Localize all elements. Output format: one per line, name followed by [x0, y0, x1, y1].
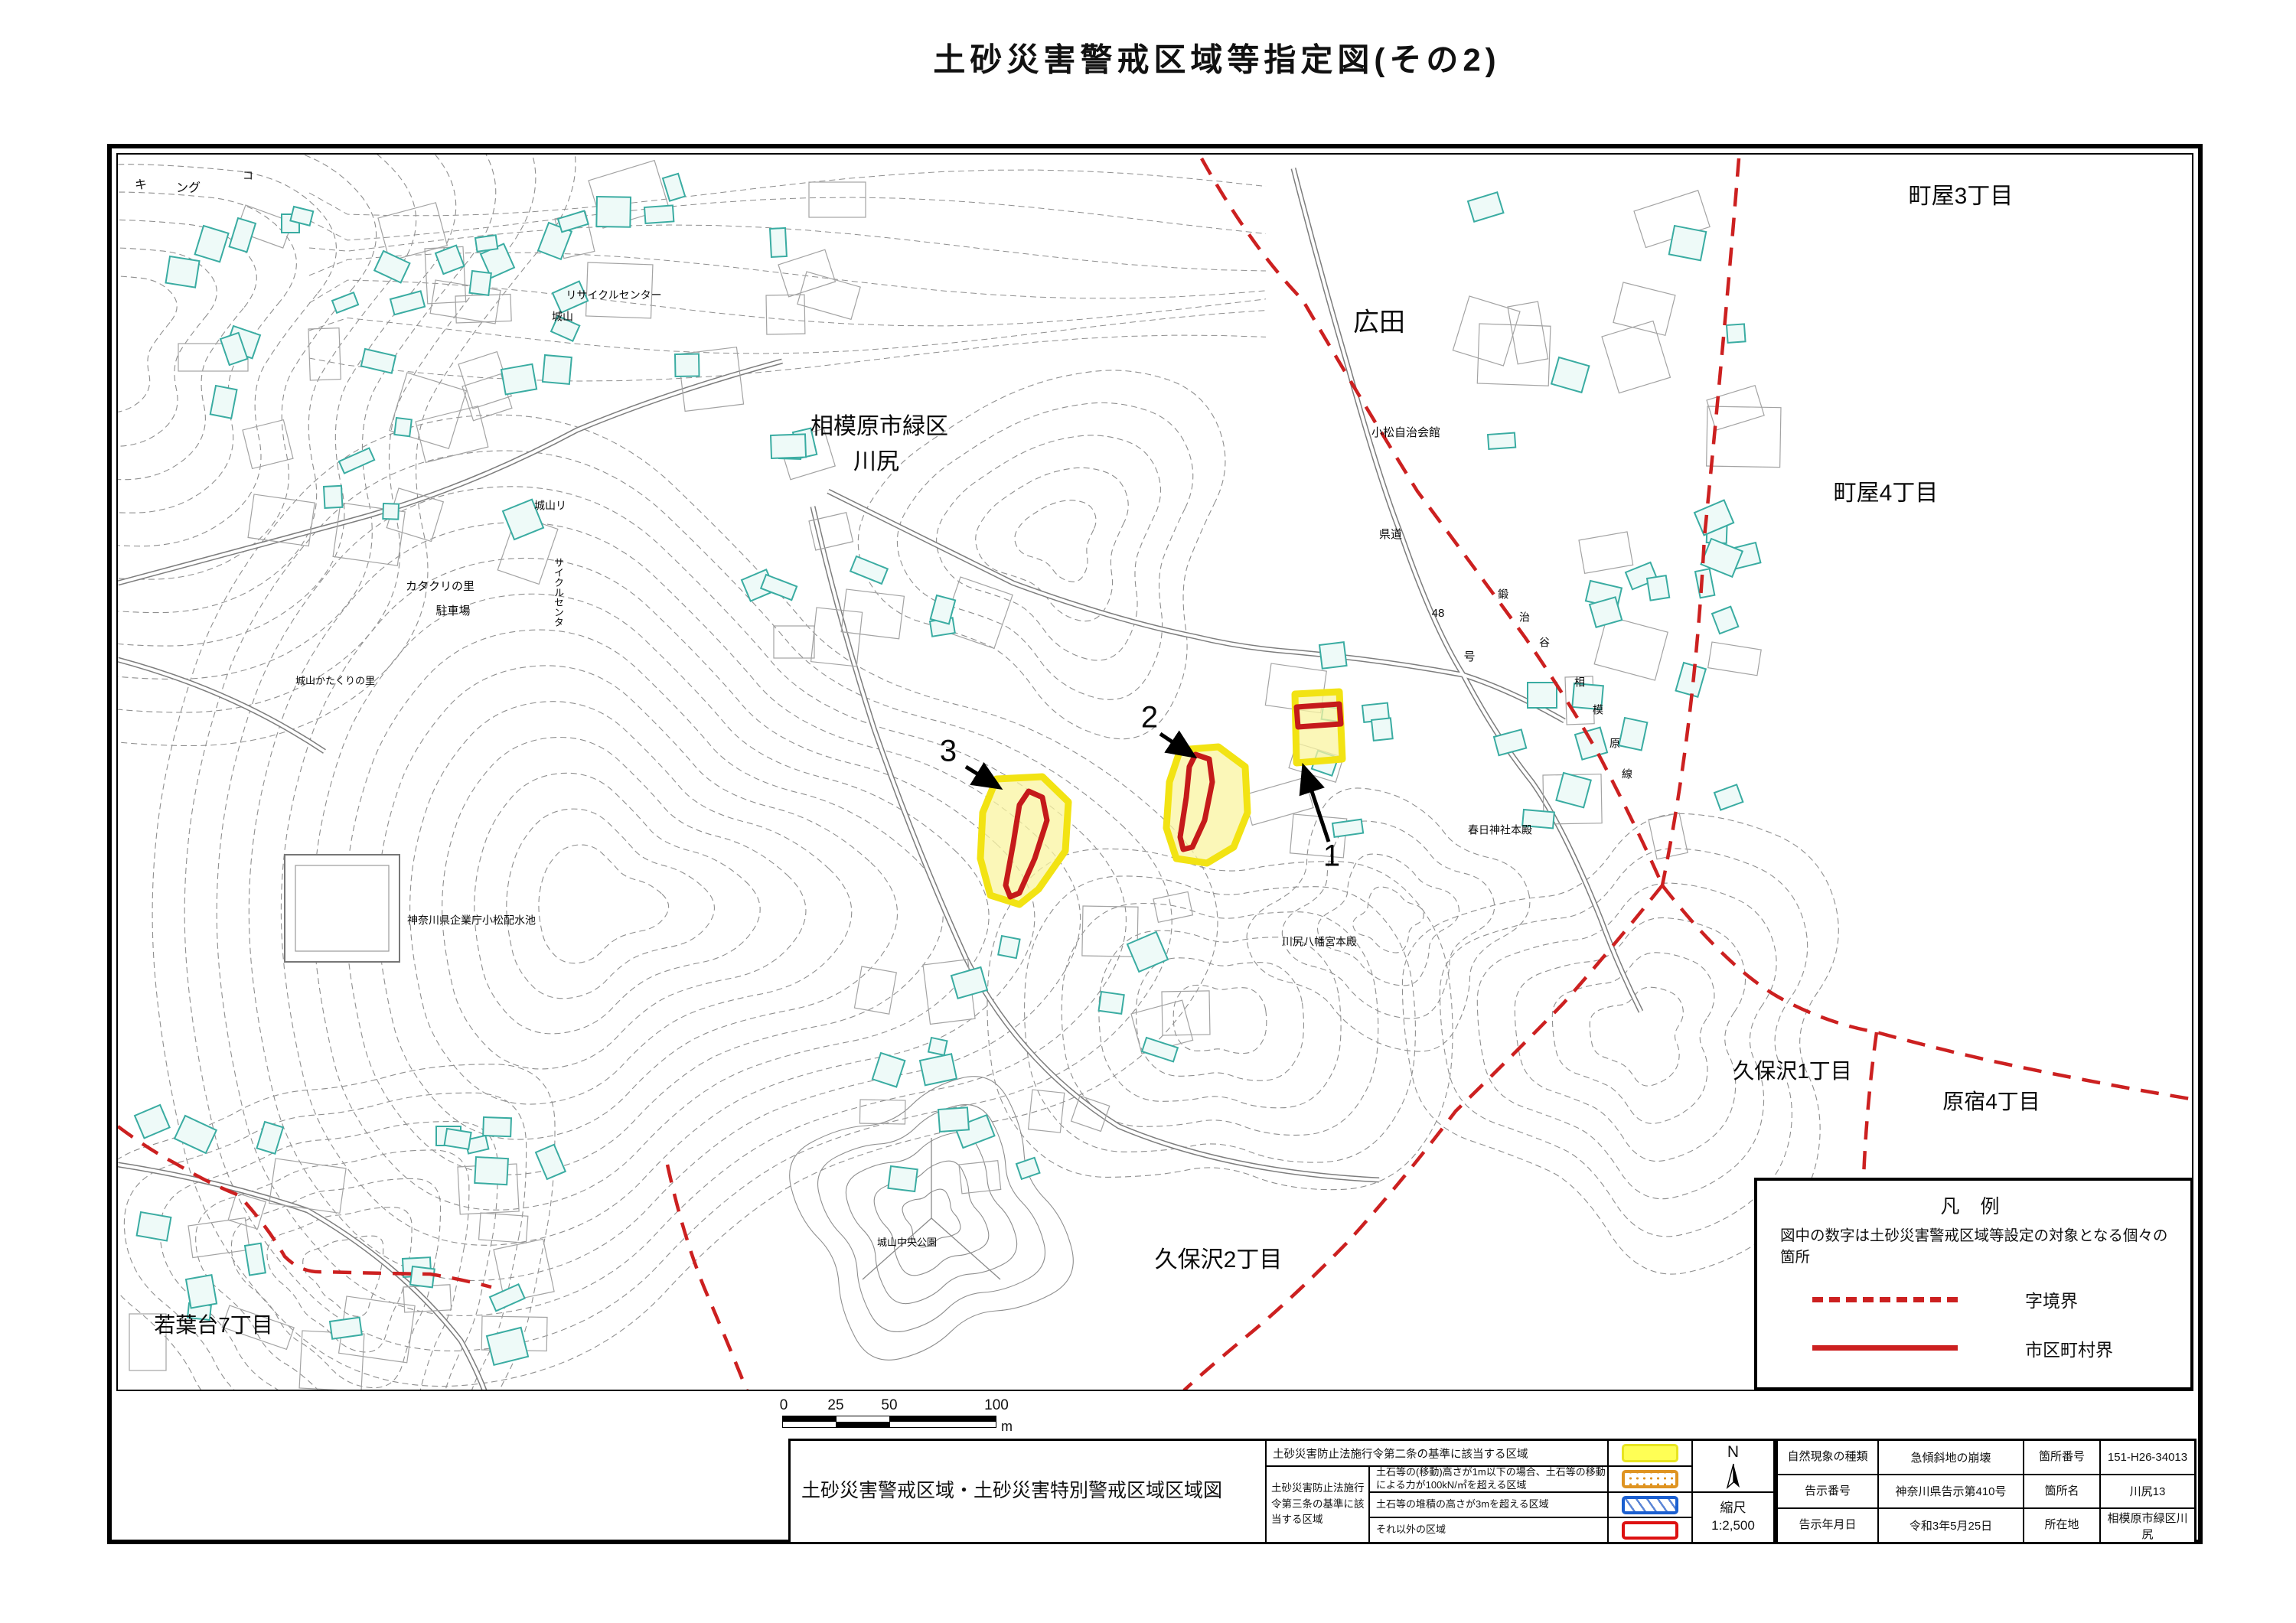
scale-tick-100: 100	[984, 1397, 1009, 1414]
legend-note: 図中の数字は土砂災害警戒区域等設定の対象となる個々の箇所	[1780, 1225, 2178, 1269]
map-label-katakuri-parking: 駐車場	[435, 605, 470, 618]
scale-cell: 縮尺 1:2,500	[1693, 1493, 1773, 1542]
map-label-kubosawa-2-chome: 久保沢2丁目	[1155, 1248, 1283, 1273]
map-label-shiroyama-katakuri-no-sato: 城山かたくりの里	[295, 676, 375, 686]
compass-needle-icon	[1724, 1462, 1743, 1490]
page: 土砂災害警戒区域等指定図(その2) 凡 例 図中の数字は土砂災害警戒区域等設定の…	[0, 0, 2296, 1623]
map-label-komatsu-hall: 小松自治会館	[1371, 427, 1440, 439]
map-label-road-char-sagami1: 相	[1574, 676, 1585, 688]
site-number-label: 箇所番号	[2024, 1441, 2099, 1474]
compass-cell: N	[1693, 1441, 1773, 1491]
map-label-road-char-kaji1: 鍛	[1498, 588, 1508, 600]
map-label-road-char-sagami2: 模	[1593, 704, 1603, 715]
designation-info-table: 自然現象の種類 急傾斜地の崩壊 箇所番号 151-H26-34013 告示番号 …	[1776, 1439, 2197, 1544]
article3-row-move-label: 土石等の(移動)高さが1m以下の場合、土石等の移動による力が100kN/㎡を超え…	[1370, 1467, 1607, 1491]
phenomenon-type-value: 急傾斜地の崩壊	[1879, 1441, 2023, 1474]
map-legend-box: 凡 例 図中の数字は土砂災害警戒区域等設定の対象となる個々の箇所 字境界 市区町…	[1754, 1178, 2193, 1390]
map-label-hirota: 広田	[1353, 309, 1405, 337]
legend-title: 凡 例	[1941, 1191, 2007, 1219]
scale-bar-graphic	[782, 1416, 996, 1428]
map-label-road-char-kaji2: 治	[1519, 611, 1530, 623]
article3-row-other-label: それ以外の区域	[1370, 1518, 1607, 1542]
yellow-area-swatch	[1622, 1444, 1678, 1462]
swatch-cell-blue	[1609, 1493, 1691, 1517]
scale-tick-50: 50	[881, 1397, 897, 1414]
map-label-text-fragment-ngu: ング	[176, 181, 201, 194]
map-label-road-char-hara: 原	[1609, 738, 1620, 749]
site-number-value: 151-H26-34013	[2101, 1441, 2194, 1474]
legend-table: 土砂災害警戒区域・土砂災害特別警戒区域区域図 土砂災害防止法施行令第二条の基準に…	[788, 1439, 1776, 1544]
map-label-kawashiri: 川尻	[853, 450, 899, 474]
map-label-road-char-ya: 谷	[1539, 637, 1550, 648]
article3-row-deposit-label: 土石等の堆積の高さが3mを超える区域	[1370, 1493, 1607, 1517]
map-label-shiroyama-ri: 城山リ	[534, 500, 566, 511]
map-label-komatsu-reservoir: 神奈川県企業庁小松配水池	[407, 914, 536, 926]
map-label-kasuga-shrine: 春日神社本殿	[1468, 824, 1532, 836]
page-title: 土砂災害警戒区域等指定図(その2)	[933, 34, 1500, 81]
map-label-kendo: 県道	[1379, 529, 1402, 541]
swatch-cell-orange	[1609, 1467, 1691, 1491]
compass-north-label: N	[1727, 1443, 1739, 1462]
map-label-route-48: 48	[1432, 608, 1445, 620]
map-canvas[interactable]: 凡 例 図中の数字は土砂災害警戒区域等設定の対象となる個々の箇所 字境界 市区町…	[116, 153, 2193, 1391]
map-label-road-char-sen: 線	[1622, 768, 1632, 780]
map-label-recycle-center: リサイクルセンター	[566, 289, 661, 301]
scale-bar: 0 25 50 100 m	[782, 1397, 1035, 1434]
notification-date-value: 令和3年5月25日	[1879, 1509, 2023, 1542]
map-label-text-fragment-ki: キ	[135, 178, 147, 191]
notification-date-label: 告示年月日	[1778, 1509, 1877, 1542]
municipal-boundary-line-sample	[1812, 1345, 1958, 1351]
notification-number-label: 告示番号	[1778, 1475, 1877, 1508]
map-label-text-fragment-ko: コ	[243, 170, 253, 181]
site-name-label: 箇所名	[2024, 1475, 2099, 1508]
orange-dotted-swatch	[1622, 1470, 1678, 1488]
map-label-zone-number-3: 3	[940, 735, 957, 768]
swatch-cell-yellow	[1609, 1441, 1691, 1465]
map-label-wakabadai-7-chome: 若葉台7丁目	[154, 1314, 273, 1337]
aza-boundary-line-sample	[1812, 1297, 1958, 1302]
map-label-recycle-center-vertical: サイクルセンタ	[553, 558, 563, 627]
map-label-machiya-3-chome: 町屋3丁目	[1909, 184, 2014, 209]
map-sheet-title: 土砂災害警戒区域・土砂災害特別警戒区域区域図	[791, 1441, 1265, 1542]
map-label-go: 号	[1463, 651, 1475, 663]
map-label-kawashiri-hachimangu: 川尻八幡宮本殿	[1282, 936, 1357, 947]
blue-hatched-swatch	[1622, 1496, 1678, 1514]
map-label-harajuku-4-chome: 原宿4丁目	[1942, 1090, 2040, 1113]
swatch-cell-red	[1609, 1518, 1691, 1542]
location-value: 相模原市緑区川尻	[2101, 1509, 2194, 1542]
map-label-kubosawa-1-chome: 久保沢1丁目	[1733, 1060, 1852, 1083]
map-label-machiya-4-chome: 町屋4丁目	[1834, 481, 1939, 506]
article3-area-label: 土砂災害防止法施行令第三条の基準に該当する区域	[1267, 1467, 1368, 1542]
scale-value: 1:2,500	[1711, 1517, 1755, 1535]
notification-number-value: 神奈川県告示第410号	[1879, 1475, 2023, 1508]
article2-area-label: 土砂災害防止法施行令第二条の基準に該当する区域	[1267, 1441, 1607, 1465]
site-name-value: 川尻13	[2101, 1475, 2194, 1508]
scale-label: 縮尺	[1720, 1500, 1746, 1517]
map-label-sagamihara-midori-ku: 相模原市緑区	[810, 415, 948, 439]
phenomenon-type-label: 自然現象の種類	[1778, 1441, 1877, 1474]
map-label-zone-number-2: 2	[1141, 701, 1158, 734]
municipal-boundary-label: 市区町村界	[2025, 1335, 2113, 1361]
scale-unit-label: m	[1001, 1419, 1013, 1435]
map-label-zone-number-1: 1	[1323, 839, 1340, 872]
map-label-shiroyama-chuo-park: 城山中央公園	[877, 1237, 937, 1248]
scale-tick-25: 25	[827, 1397, 843, 1414]
red-outline-swatch	[1622, 1521, 1678, 1540]
map-label-katakuri-no-sato: カタクリの里	[406, 581, 475, 593]
aza-boundary-label: 字境界	[2025, 1286, 2078, 1312]
location-label: 所在地	[2024, 1509, 2099, 1542]
scale-tick-0: 0	[780, 1397, 788, 1414]
map-label-shiroyama: 城山	[552, 311, 573, 322]
